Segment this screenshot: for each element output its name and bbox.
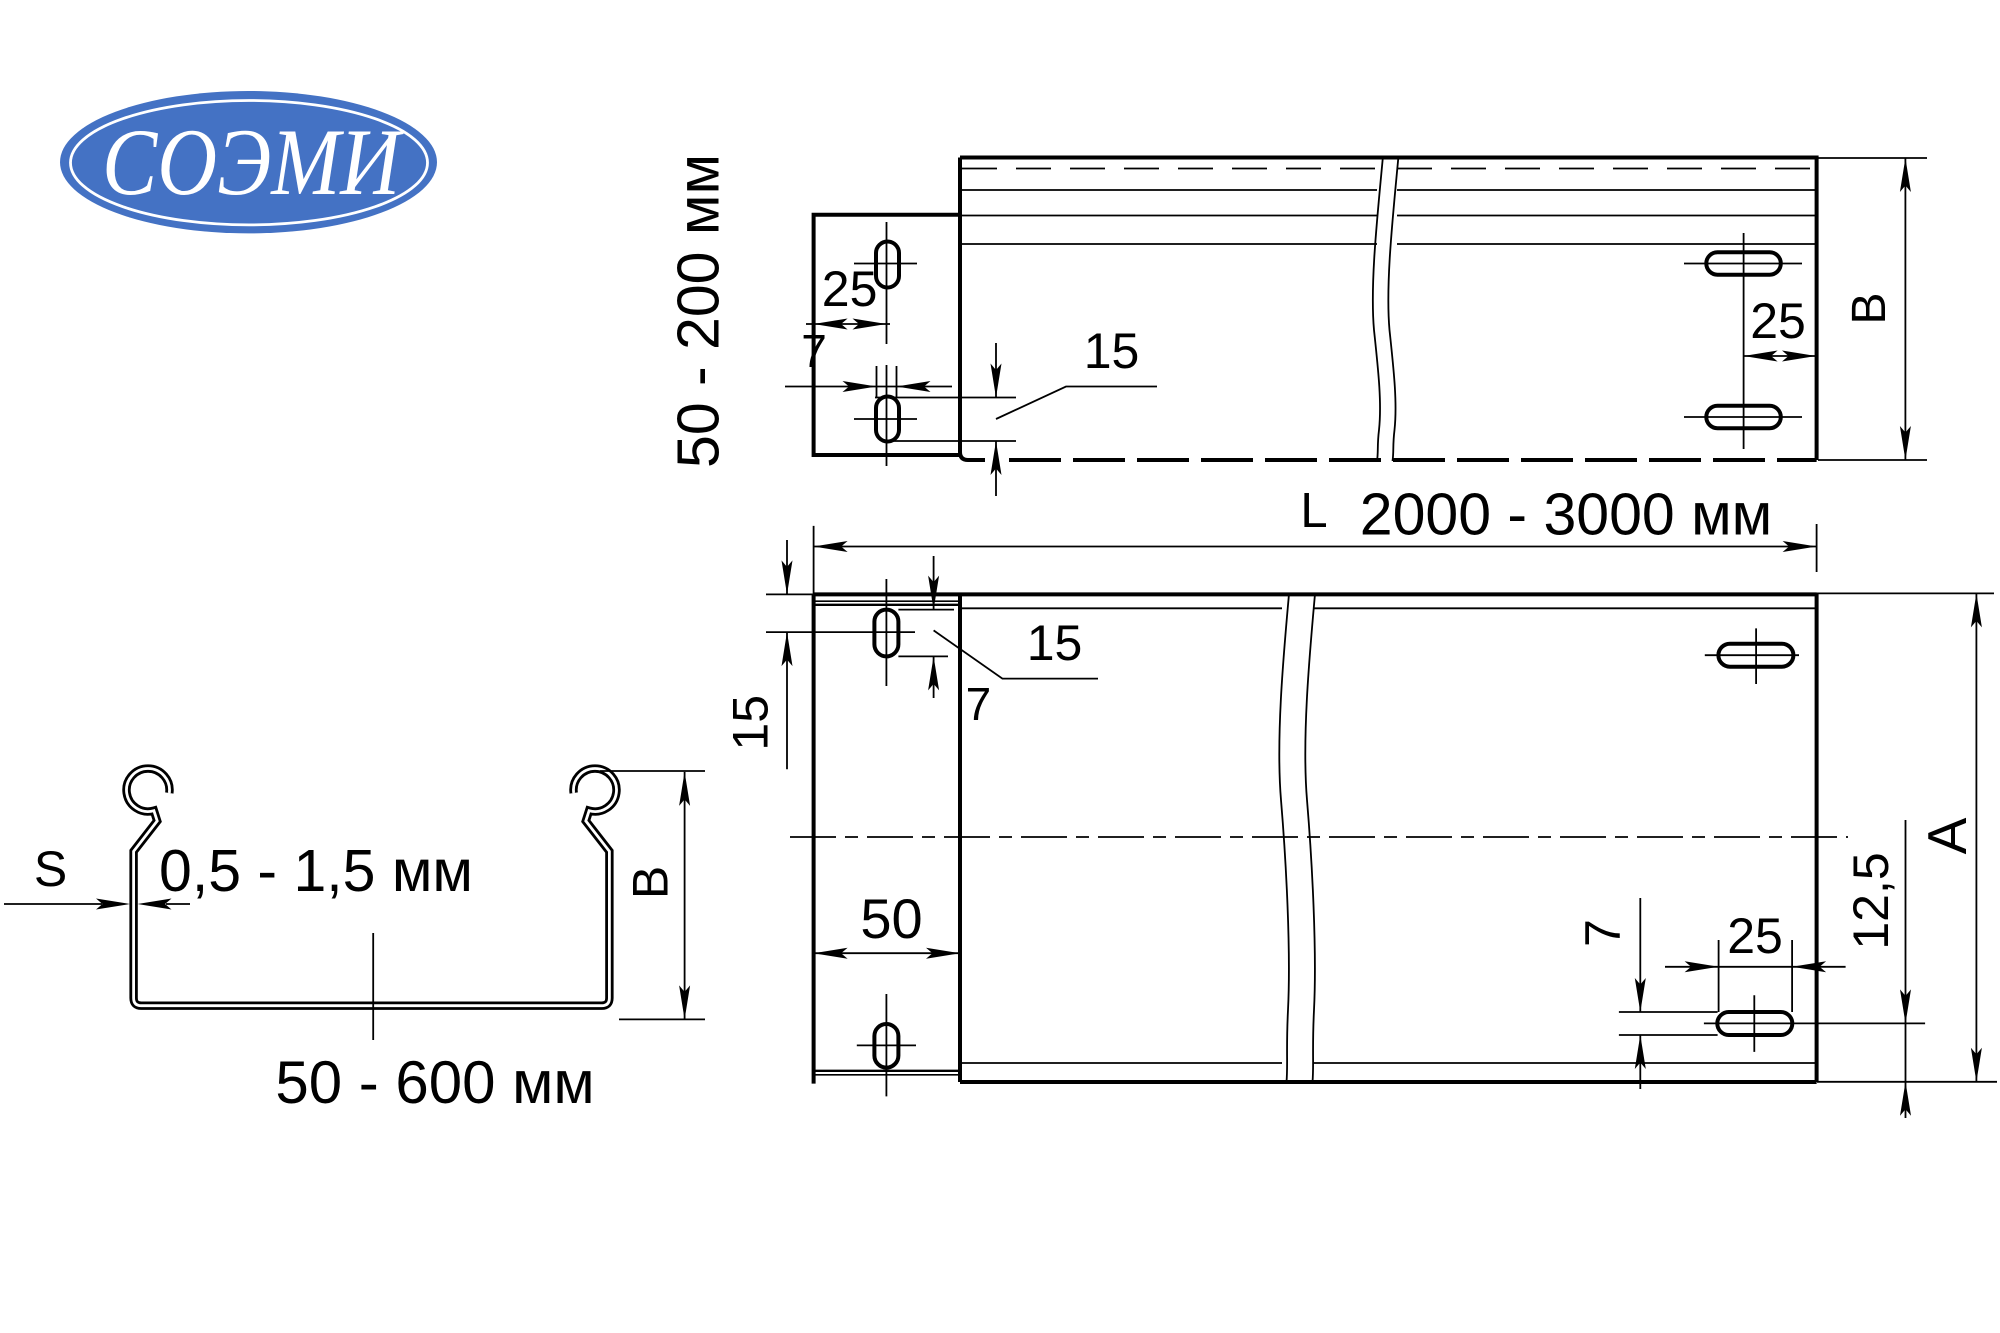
svg-text:50: 50 bbox=[860, 887, 922, 950]
svg-text:S: S bbox=[34, 841, 67, 897]
svg-text:СОЭМИ: СОЭМИ bbox=[102, 109, 404, 215]
svg-text:А: А bbox=[1916, 817, 1978, 854]
svg-text:50 - 200 мм: 50 - 200 мм bbox=[665, 154, 731, 468]
svg-text:L: L bbox=[1300, 484, 1327, 538]
svg-text:15: 15 bbox=[722, 695, 778, 751]
svg-text:50 - 600 мм: 50 - 600 мм bbox=[275, 1049, 594, 1116]
svg-text:0,5 - 1,5 мм: 0,5 - 1,5 мм bbox=[159, 838, 473, 904]
svg-text:15: 15 bbox=[1027, 615, 1083, 671]
svg-text:25: 25 bbox=[1750, 293, 1806, 349]
svg-text:15: 15 bbox=[1084, 323, 1140, 379]
svg-text:В: В bbox=[623, 866, 679, 899]
svg-text:2000 - 3000 мм: 2000 - 3000 мм bbox=[1360, 482, 1772, 548]
svg-text:25: 25 bbox=[822, 261, 878, 317]
svg-text:7: 7 bbox=[801, 325, 827, 377]
svg-text:В: В bbox=[1843, 292, 1896, 324]
svg-text:12,5: 12,5 bbox=[1843, 852, 1899, 949]
svg-text:7: 7 bbox=[966, 678, 992, 730]
svg-text:7: 7 bbox=[1575, 919, 1631, 947]
svg-text:25: 25 bbox=[1727, 908, 1783, 964]
